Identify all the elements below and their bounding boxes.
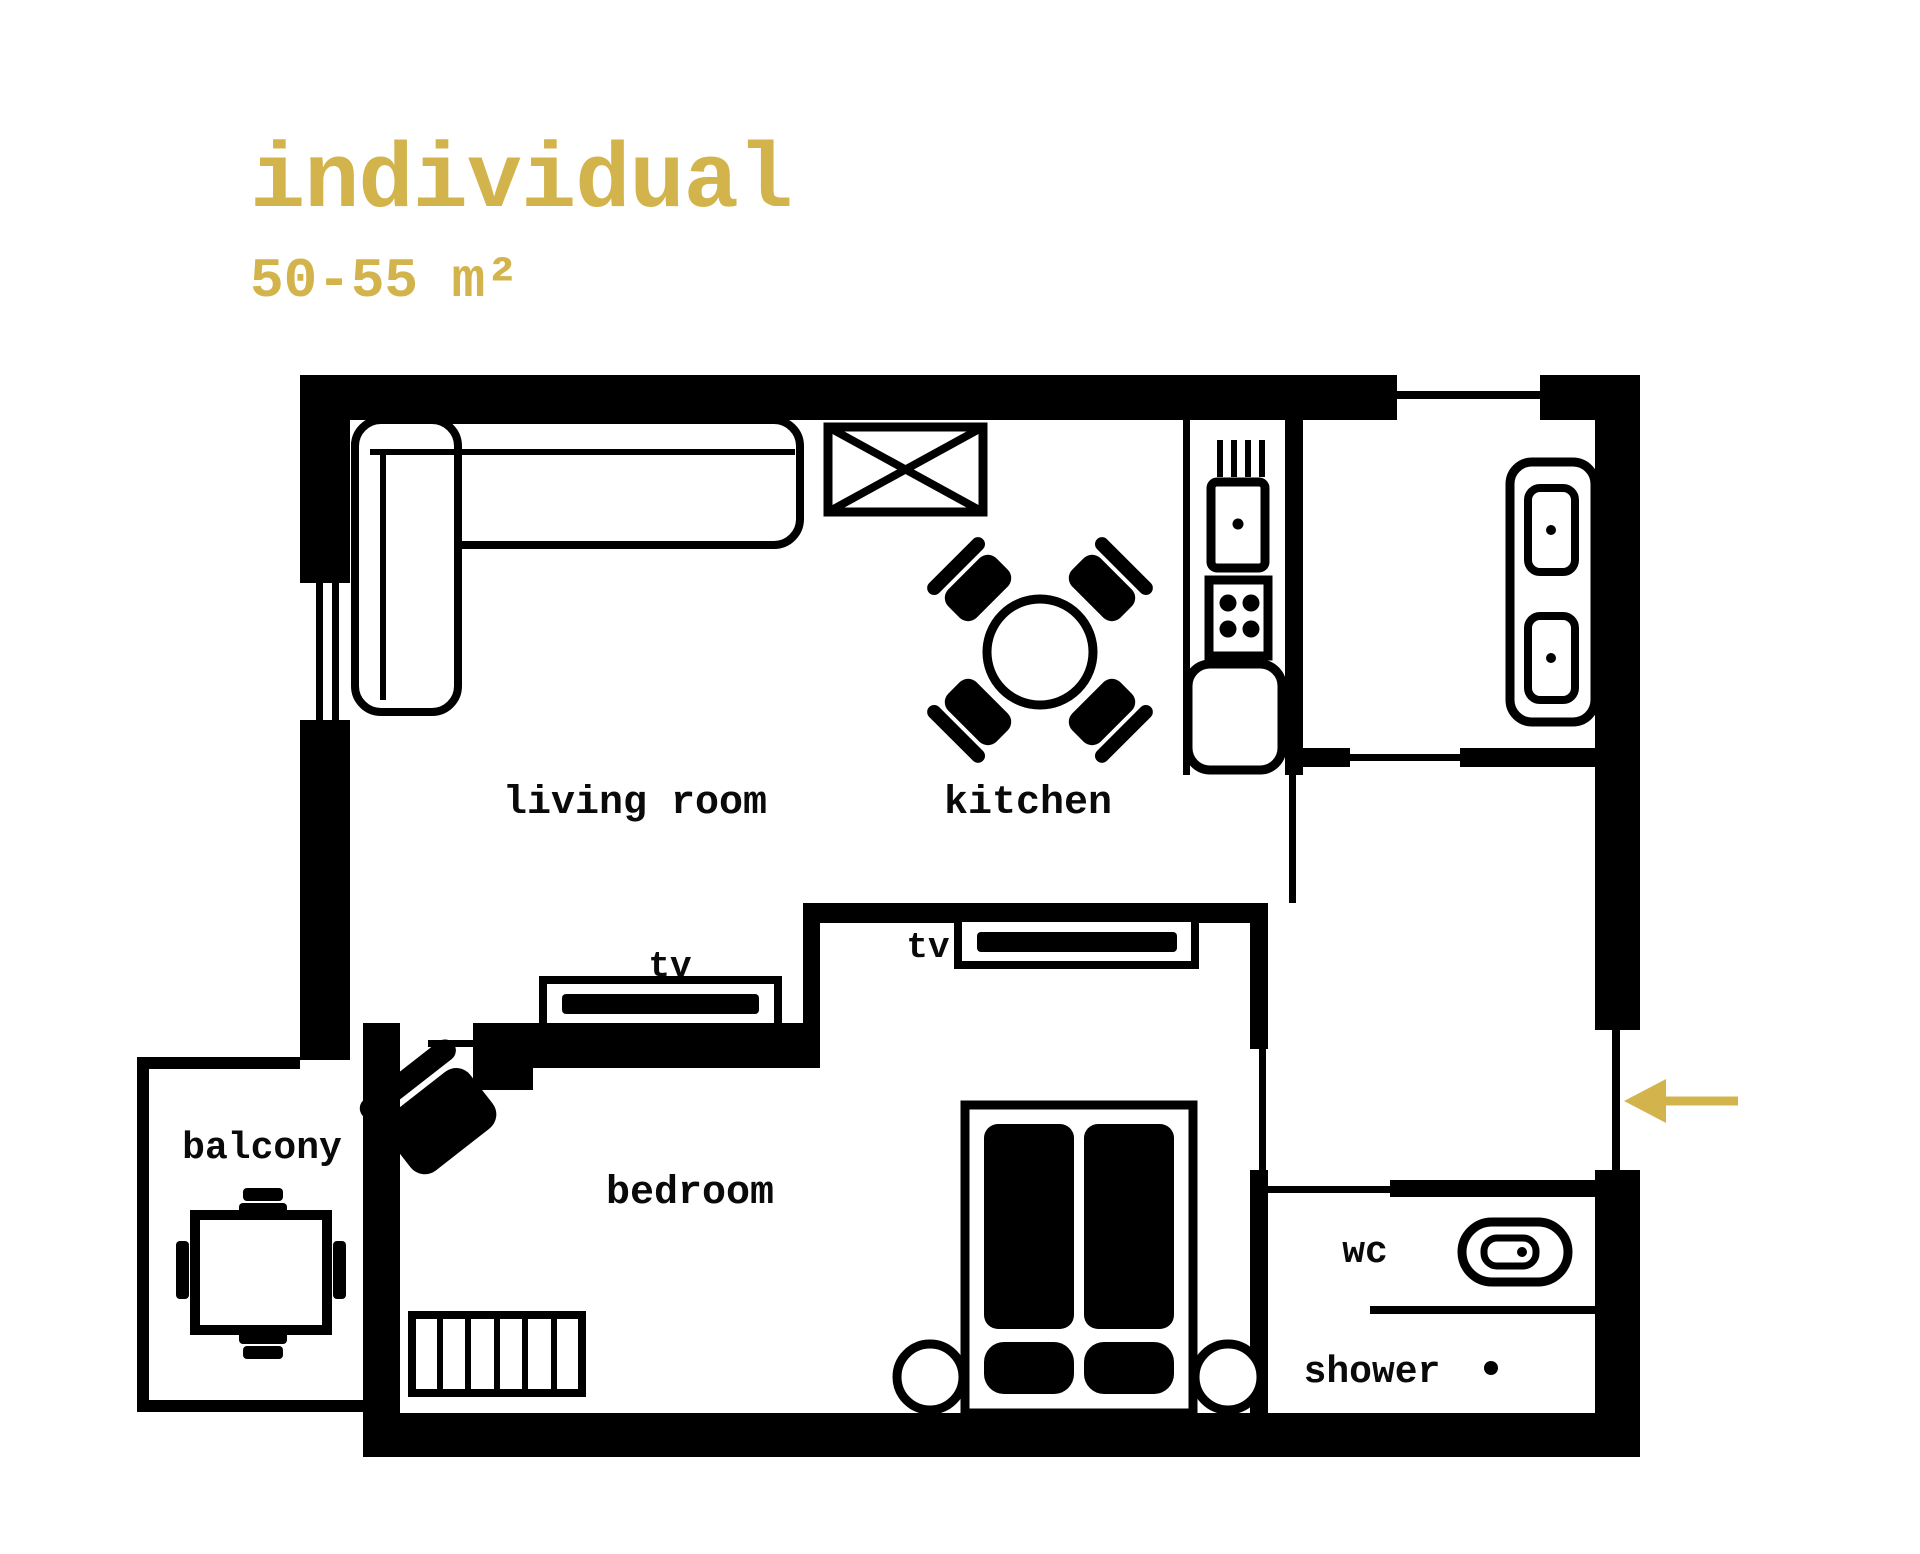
tv-wall-living-stub [473, 1068, 533, 1090]
l-sofa-icon [355, 420, 800, 712]
fridge-icon [1211, 482, 1265, 568]
nightstand-icon [897, 1344, 963, 1410]
top-wall-left [300, 375, 1397, 420]
kitchen-hall-door-line [1289, 775, 1296, 903]
wc-label: wc [1342, 1231, 1388, 1274]
nightstand-icon [1195, 1344, 1261, 1410]
page-title: individual [250, 129, 792, 234]
left-wall-lower [300, 720, 350, 1060]
balcony-label: balcony [182, 1127, 342, 1170]
left-wall-upper [300, 420, 350, 583]
balcony-table-icon [176, 1188, 346, 1359]
bedroom-hall-wall-upper [1250, 903, 1268, 1049]
tv-bedroom-label: tv [906, 927, 949, 968]
kitchen-label: kitchen [944, 781, 1112, 826]
tv-living-label: tv [648, 946, 691, 987]
tv-icon [543, 980, 778, 1027]
wardrobe-cabinets-icon [1510, 462, 1595, 722]
bedroom-door-line [1259, 1049, 1266, 1170]
living-room-label: living room [503, 781, 767, 826]
shower-drain-icon [1484, 1361, 1498, 1375]
hall-top-door-line [1350, 754, 1460, 761]
dining-table-icon [924, 534, 1155, 765]
toilet-icon [1462, 1222, 1568, 1282]
top-wall-right [1540, 375, 1640, 420]
heater-icon [412, 1315, 582, 1393]
wall-cabinet-icon [828, 427, 983, 512]
entrance-door-line [1612, 1030, 1620, 1170]
double-bed-icon [965, 1105, 1193, 1413]
left-window-icon [316, 583, 339, 720]
tv-icon [958, 918, 1195, 965]
top-window-icon [1395, 391, 1540, 399]
bottom-wall [363, 1413, 1640, 1457]
wc-door-line [1268, 1186, 1390, 1193]
hall-top-divider-b [1460, 748, 1595, 767]
bedroom-label: bedroom [606, 1171, 774, 1216]
tv-wall-bedroom-leg [803, 903, 820, 1068]
right-wall-upper [1595, 420, 1640, 1030]
kitchen-radiator-icon [1217, 440, 1265, 477]
hall-top-divider-a [1303, 748, 1350, 767]
kitchen-sink-icon [1188, 664, 1282, 770]
floor-plan-page: individual 50-55 m² [0, 0, 1920, 1554]
wc-top-wall [1390, 1180, 1595, 1197]
area-subtitle: 50-55 m² [250, 249, 519, 313]
shower-divider-line [1370, 1306, 1595, 1314]
entrance-arrow-icon [1624, 1079, 1738, 1123]
kitchen-right-wall [1285, 420, 1303, 775]
shower-label: shower [1304, 1351, 1441, 1394]
stove-icon [1209, 580, 1268, 656]
